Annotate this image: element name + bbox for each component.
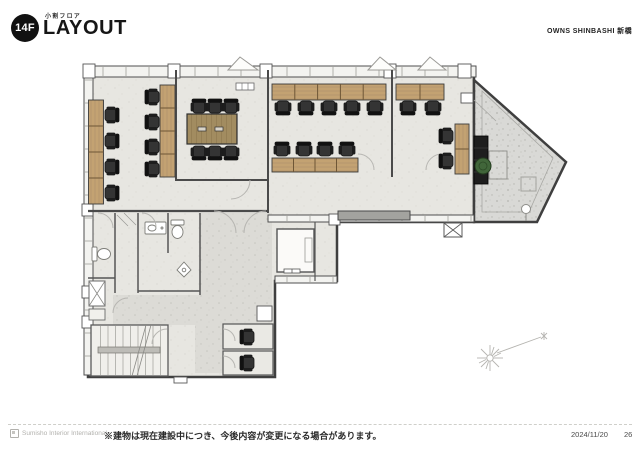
- elevator: [277, 229, 314, 273]
- company-logo: Sumisho Interior International: [10, 429, 107, 438]
- desk-strip-left-inner: [160, 85, 175, 177]
- sumisho-logo-icon: [10, 429, 19, 438]
- date-label: 2024/11/20: [571, 430, 608, 439]
- plant-icon: [475, 158, 491, 174]
- meeting-table: [187, 114, 237, 144]
- page-number: 26: [624, 430, 632, 439]
- desk-row-top: [272, 84, 386, 100]
- compass-starburst-icon: [477, 332, 547, 371]
- x-louver-icon: [444, 223, 462, 237]
- toilet-icon: [92, 247, 111, 261]
- construction-note: ※建物は現在建設中につき、今後内容が変更になる場合があります。: [104, 429, 381, 442]
- counter: [338, 211, 410, 220]
- exterior-stub: [174, 377, 187, 383]
- terrace: [474, 80, 566, 222]
- desk-row-top-right: [396, 84, 444, 100]
- toilet-icon: [171, 220, 184, 239]
- floor-plan-svg: [0, 0, 640, 453]
- wall-label-box: [236, 83, 254, 90]
- desk-strip-right-wall: [455, 124, 469, 174]
- desk-strip-left-wall: [89, 100, 104, 204]
- floor-plan: [82, 57, 566, 383]
- company-name: Sumisho Interior International: [22, 430, 107, 437]
- desk-row-middle: [272, 158, 358, 172]
- layout-slide-page: 14F 小割フロア LAYOUT OWNS SHINBASHI 新橋: [0, 0, 640, 453]
- footer-divider: [8, 424, 632, 425]
